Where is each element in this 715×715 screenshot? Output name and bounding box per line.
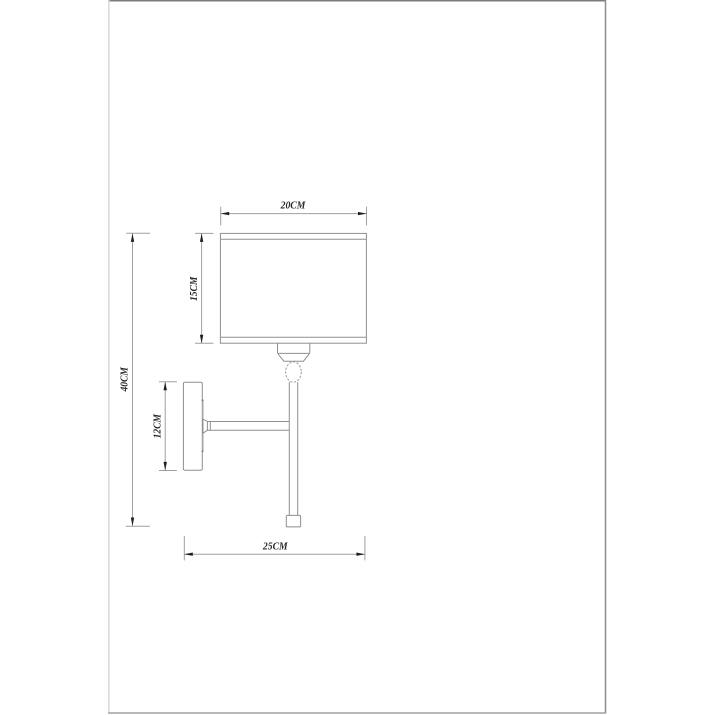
svg-text:25CM: 25CM xyxy=(262,541,289,553)
svg-text:15CM: 15CM xyxy=(188,276,200,301)
svg-text:20CM: 20CM xyxy=(280,200,307,212)
svg-text:40CM: 40CM xyxy=(119,366,131,392)
svg-text:12CM: 12CM xyxy=(152,413,164,438)
